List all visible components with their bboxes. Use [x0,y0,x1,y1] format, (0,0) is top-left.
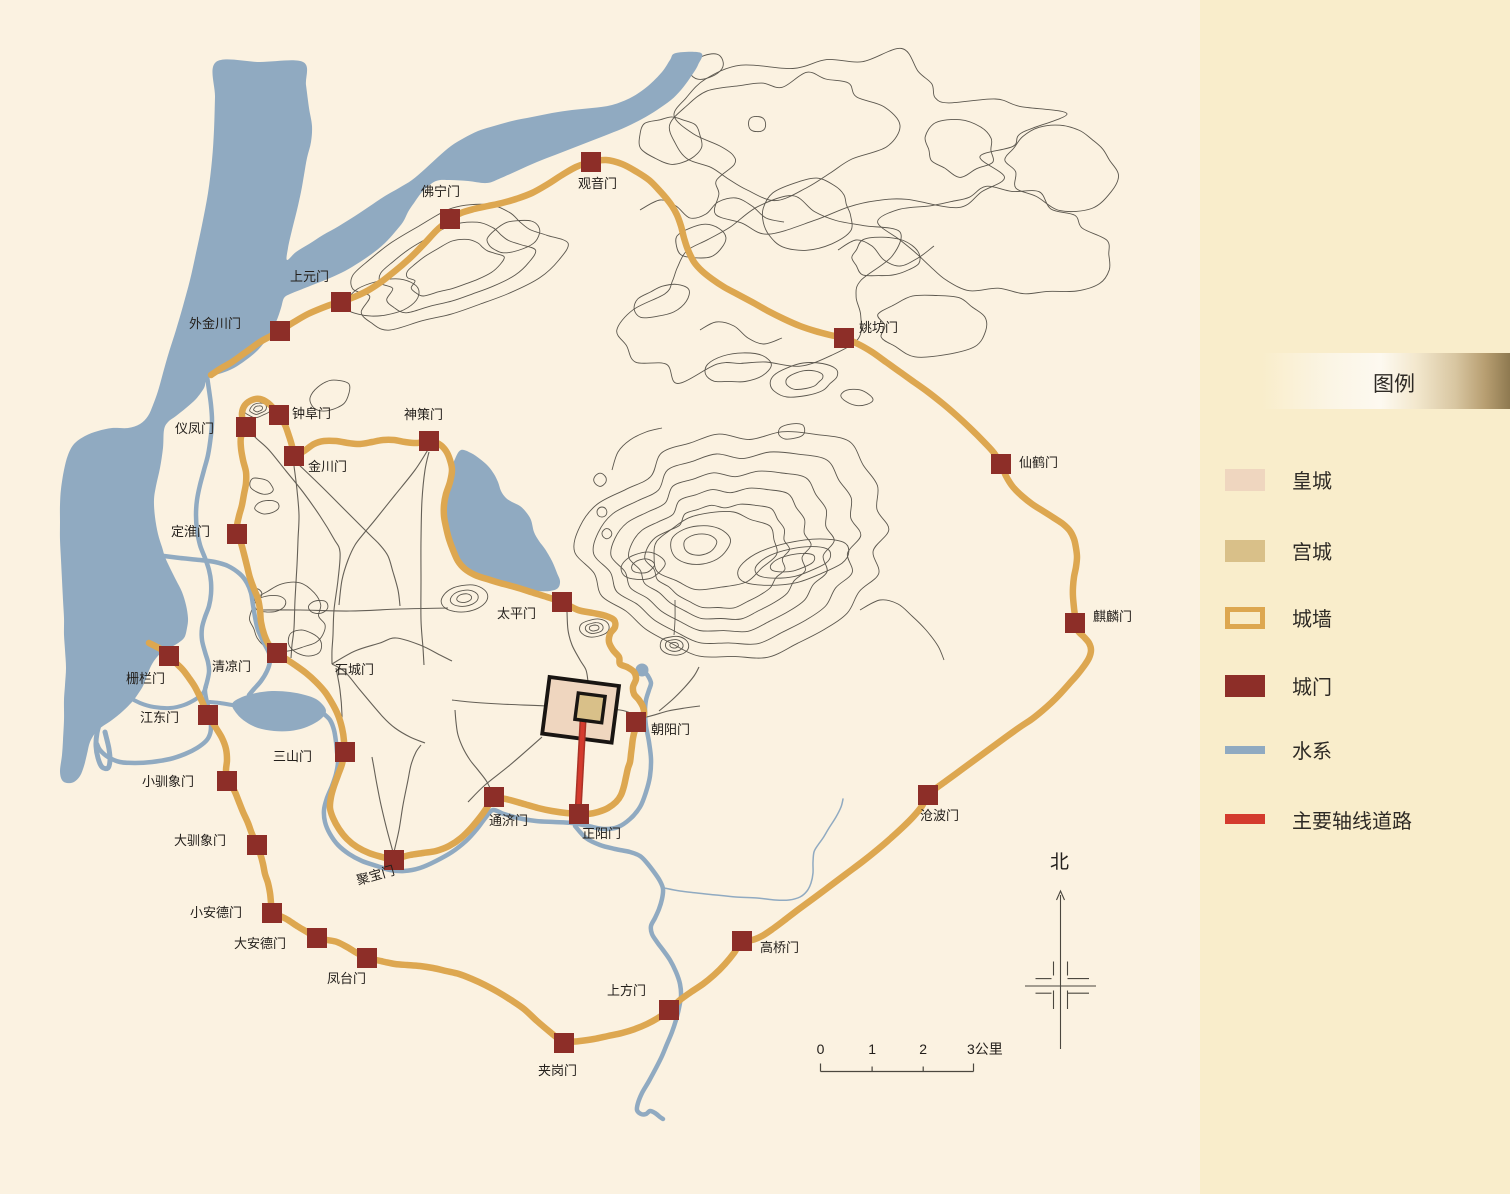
svg-text:北: 北 [1050,851,1069,873]
svg-text:水系: 水系 [1292,740,1332,763]
svg-text:江东门: 江东门 [140,710,179,725]
svg-text:夹岗门: 夹岗门 [538,1063,577,1078]
svg-text:神策门: 神策门 [404,407,443,422]
svg-text:通济门: 通济门 [489,813,528,828]
svg-text:大安德门: 大安德门 [234,936,286,951]
svg-text:姚坊门: 姚坊门 [859,320,898,335]
svg-text:上元门: 上元门 [290,269,329,284]
svg-text:皇城: 皇城 [1292,470,1332,493]
svg-text:仙鹤门: 仙鹤门 [1019,455,1058,470]
svg-text:清凉门: 清凉门 [212,659,251,674]
svg-text:定淮门: 定淮门 [171,524,210,539]
svg-text:沧波门: 沧波门 [920,808,959,823]
svg-text:金川门: 金川门 [308,459,347,474]
svg-text:上方门: 上方门 [607,983,646,998]
svg-text:太平门: 太平门 [497,606,536,621]
svg-text:大驯象门: 大驯象门 [174,833,226,848]
svg-text:1: 1 [868,1041,876,1057]
svg-text:高桥门: 高桥门 [760,940,799,955]
svg-text:2: 2 [919,1041,927,1057]
svg-text:石城门: 石城门 [335,662,374,677]
svg-text:栅栏门: 栅栏门 [126,671,165,686]
svg-text:图例: 图例 [1373,373,1415,396]
svg-text:外金川门: 外金川门 [189,316,241,331]
svg-text:城门: 城门 [1292,676,1332,699]
svg-text:朝阳门: 朝阳门 [651,722,690,737]
svg-text:正阳门: 正阳门 [582,826,621,841]
svg-text:小安德门: 小安德门 [190,905,242,920]
svg-text:0: 0 [817,1041,825,1057]
svg-text:佛宁门: 佛宁门 [421,184,460,199]
svg-text:钟阜门: 钟阜门 [292,406,331,421]
svg-text:仪凤门: 仪凤门 [175,421,214,436]
svg-text:小驯象门: 小驯象门 [142,774,194,789]
svg-text:宫城: 宫城 [1292,541,1332,564]
svg-text:麒麟门: 麒麟门 [1093,609,1132,624]
svg-text:凤台门: 凤台门 [327,971,366,986]
svg-text:主要轴线道路: 主要轴线道路 [1292,810,1412,833]
svg-text:3公里: 3公里 [967,1041,1003,1057]
svg-text:三山门: 三山门 [273,749,312,764]
svg-text:城墙: 城墙 [1292,608,1332,631]
svg-text:观音门: 观音门 [578,176,617,191]
